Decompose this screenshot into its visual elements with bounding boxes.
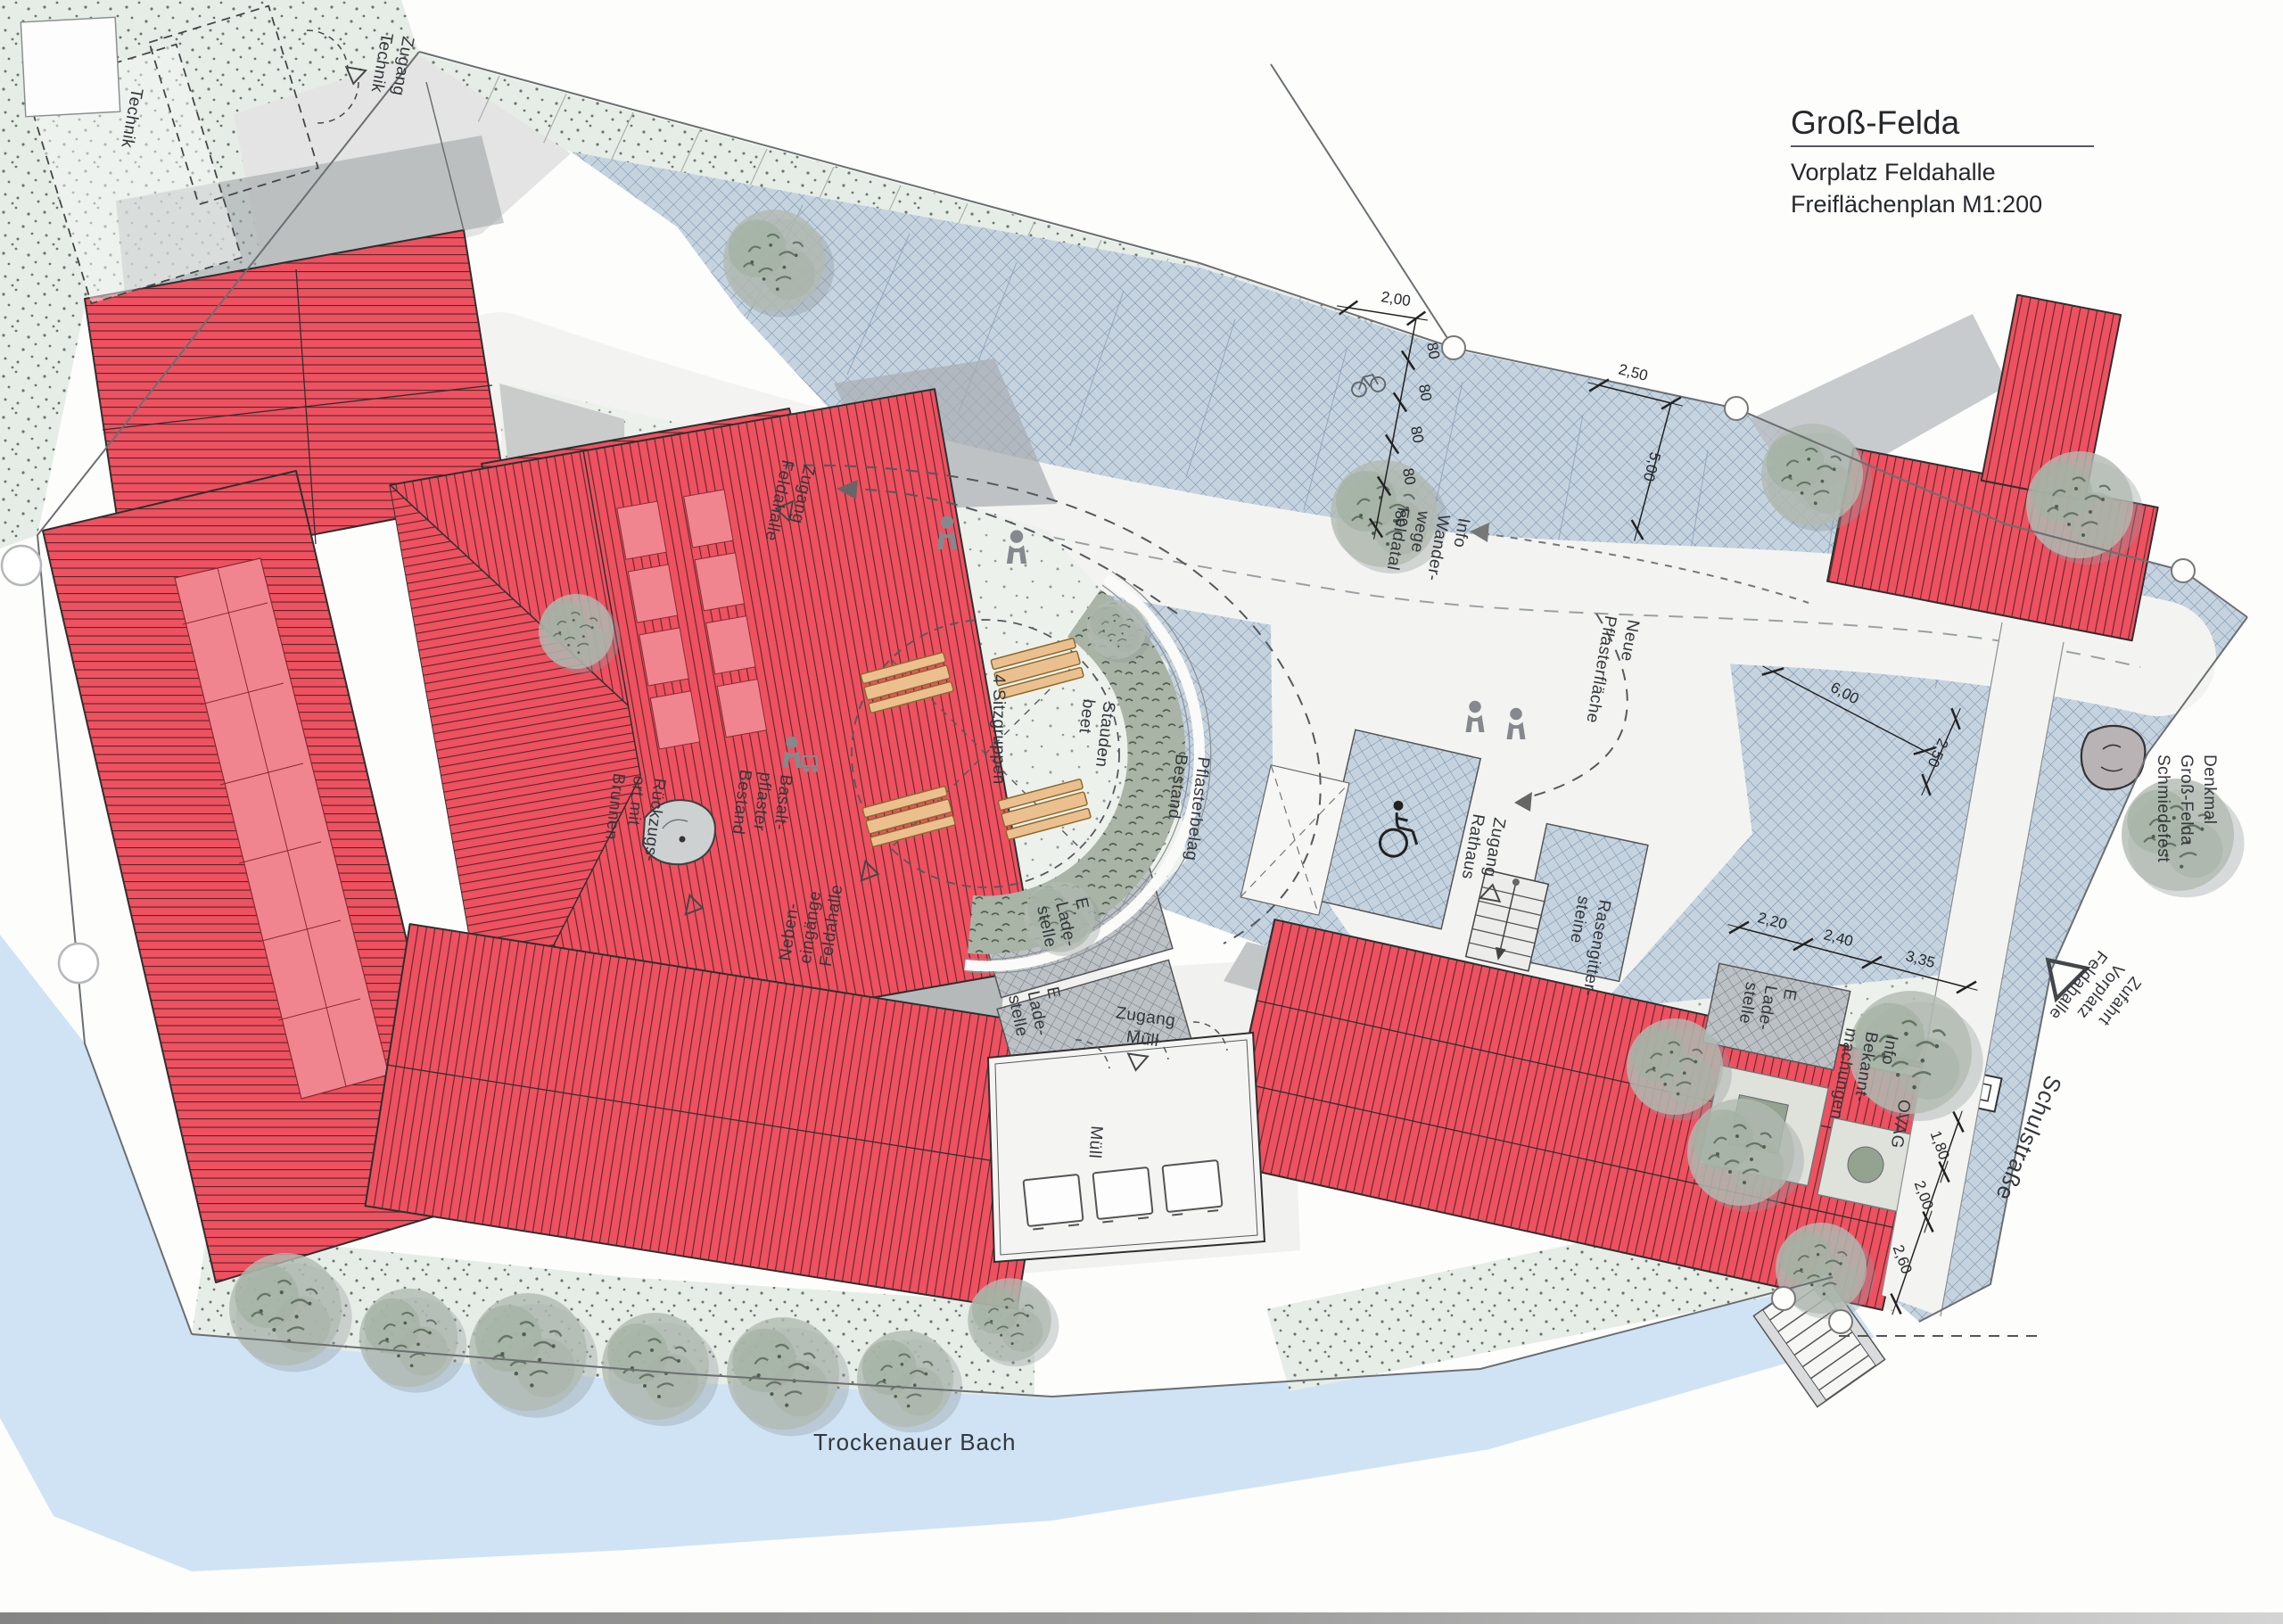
- dim-label: 80: [1415, 383, 1435, 402]
- label-muell: Müll: [1084, 1125, 1106, 1159]
- label-trockenauer-bach: Trockenauer Bach: [813, 1429, 1016, 1455]
- dim-label: 80: [1423, 341, 1443, 360]
- scan-edge-strip: [0, 1612, 2283, 1624]
- label-sitzgruppen: 4 Sitzgruppen: [989, 674, 1008, 785]
- plan-title: Groß-Felda: [1791, 104, 1960, 141]
- dim-label: 80: [1399, 466, 1419, 486]
- dim-label: 80: [1407, 425, 1427, 444]
- punch-hole: [2, 546, 41, 585]
- site-plan-drawing: 2,00 80 80 80 80 80 2,50 5,00 6,00 2,50 …: [0, 0, 2283, 1624]
- plan-subtitle-2: Freiflächenplan M1:200: [1791, 191, 2042, 218]
- muell-enclosure: [988, 1022, 1265, 1262]
- technik-pad: [21, 17, 120, 116]
- label-basaltpflaster: Basalt-pflasterBestand: [728, 769, 795, 841]
- site-plan-page: 2,00 80 80 80 80 80 2,50 5,00 6,00 2,50 …: [0, 0, 2283, 1624]
- punch-hole: [59, 944, 98, 983]
- plan-subtitle-1: Vorplatz Feldahalle: [1791, 159, 1996, 185]
